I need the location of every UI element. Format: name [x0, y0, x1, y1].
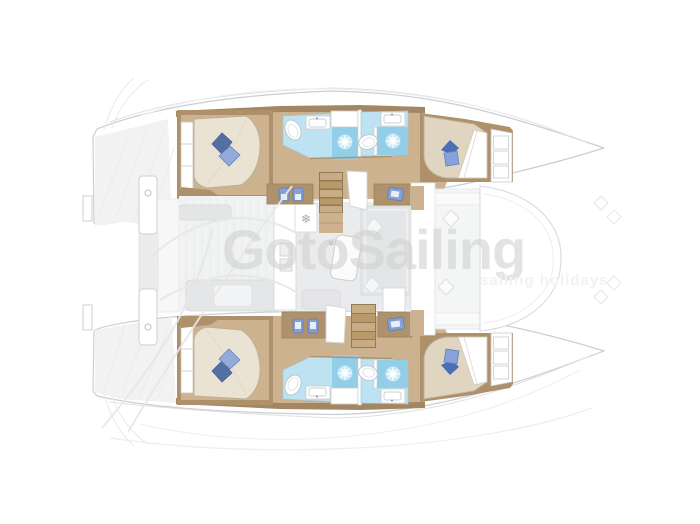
svg-text:sailing holidays: sailing holidays: [480, 272, 609, 289]
